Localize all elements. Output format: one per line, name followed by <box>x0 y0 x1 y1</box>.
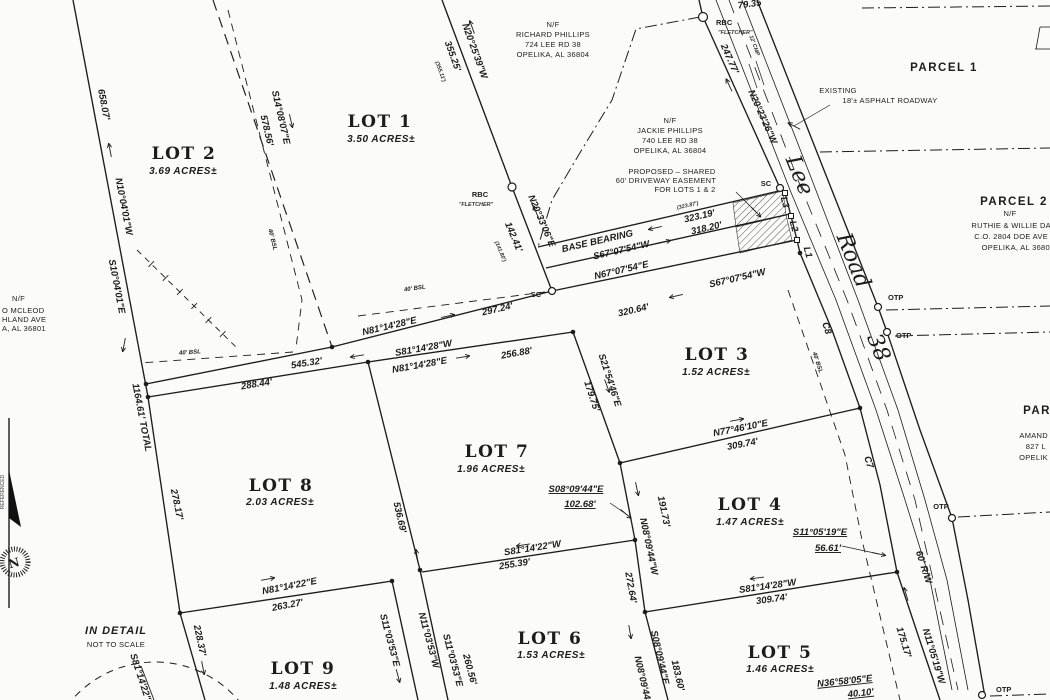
direction-arrow <box>201 661 205 675</box>
adjoiner-label: JACKIE PHILLIPS <box>637 126 703 135</box>
bearing-label: N08°09'44"W <box>632 655 656 700</box>
easement-corner-marker <box>783 191 788 196</box>
monument-marker <box>508 183 516 191</box>
bearing-label: 191.73' <box>655 495 672 529</box>
bearing-label: 79.35 <box>737 0 763 12</box>
adjoiner-label: RUTHIE & WILLIE DA <box>971 221 1050 230</box>
easement-corner-marker <box>789 214 794 219</box>
bearing-label: S81°14'22"W <box>127 652 156 700</box>
adjoiner-parcel-line <box>990 694 1050 696</box>
bearing-label: 536.69' <box>391 501 409 535</box>
lot-acreage: 2.03 ACRES± <box>245 497 314 508</box>
north-arrow-pennant <box>9 470 21 527</box>
adjoiner-parcel-line <box>862 6 1050 8</box>
lot-acreage: 3.50 ACRES± <box>347 134 415 145</box>
arrow-head <box>270 576 275 577</box>
arrow-head <box>638 491 639 496</box>
lot-acreage: 1.48 ACRES± <box>269 681 337 692</box>
lot-name: LOT 6 <box>518 629 583 649</box>
lot-acreage: 3.69 ACRES± <box>149 166 217 177</box>
bearing-label: 578.56' <box>258 114 276 148</box>
labels-layer: LOT 13.50 ACRES±LOT 23.69 ACRES±LOT 31.5… <box>0 0 1050 700</box>
direction-arrow <box>648 226 662 230</box>
corner-marker <box>895 570 900 575</box>
adjoiner-label: O MCLEOD <box>2 306 45 315</box>
adjoiner-parcel-line <box>895 332 1050 336</box>
bearing-label: C8 <box>819 321 833 337</box>
road-name-label: 38 <box>861 330 895 365</box>
corner-marker <box>418 568 423 573</box>
bearing-label: 545.32' <box>290 356 323 372</box>
corner-marker <box>178 611 183 616</box>
corner-marker <box>633 538 638 543</box>
direction-arrow <box>669 294 683 298</box>
record-distance-label: "FLETCHER" <box>459 202 494 208</box>
adjoiner-label: FOR LOTS 1 & 2 <box>654 185 715 194</box>
bearing-label: 320.64' <box>617 302 651 320</box>
bearing-label: 297.24' <box>480 301 515 319</box>
adjoiner-parcel-line <box>958 512 1050 517</box>
bearing-label: 179.75' <box>581 380 601 414</box>
boundary-line <box>1036 27 1040 49</box>
arrow-head <box>204 670 205 675</box>
setback-line <box>228 10 302 348</box>
boundary-line <box>620 408 860 463</box>
bearing-label: 256.88' <box>499 345 533 362</box>
setback-label: 40' BSL <box>810 350 823 374</box>
arrow-head <box>350 357 355 358</box>
bearing-label: N20°33'06"E <box>525 193 557 249</box>
adjoiner-label: N/F <box>664 116 677 125</box>
adjoiner-parcel-line <box>820 148 1050 152</box>
adjoiner-label: 724 LEE RD 38 <box>525 40 581 49</box>
lot-acreage: 1.96 ACRES± <box>457 464 525 475</box>
arrow-head <box>669 298 674 299</box>
direction-arrow <box>107 143 111 157</box>
lot-name: LOT 2 <box>152 144 217 164</box>
arrow-head <box>739 417 744 418</box>
parcel-label: PARCEL 1 <box>910 62 978 74</box>
monument-label: OTP <box>888 293 903 302</box>
bearing-label: 272.64' <box>622 570 639 604</box>
bearing-label: N20°25'39"W <box>459 22 490 81</box>
bearing-label: N11°05'19"W <box>920 627 948 686</box>
bearing-label: 263.27' <box>270 597 305 614</box>
monument-label: RBC <box>716 18 733 27</box>
parcel-label: PARCEL 2 <box>980 196 1048 208</box>
bearing-label: 40.10' <box>846 687 875 700</box>
adjoiner-label: N/F <box>12 294 25 303</box>
boundary-line <box>148 332 573 397</box>
bearing-label: L1 <box>801 246 814 260</box>
bearing-label: 228.37' <box>191 623 209 658</box>
corner-marker <box>858 406 863 411</box>
plat-page: N LOT 13.50 ACRES±LOT 23.69 ACRES±LOT 31… <box>0 0 1050 700</box>
bearing-label: 102.68' <box>564 499 596 510</box>
adjoiner-parcel-line <box>886 306 1050 310</box>
monument-marker <box>549 288 556 295</box>
bearing-label: 255.39' <box>497 557 531 573</box>
adjoiner-label: 827 L <box>1026 442 1046 451</box>
direction-arrow <box>730 417 744 421</box>
monument-label: OTP <box>896 331 911 340</box>
monument-label: OTP <box>933 502 948 511</box>
lot-acreage: 1.53 ACRES± <box>517 650 585 661</box>
bearing-label: S11°03'53"E <box>377 613 402 669</box>
arrow-head <box>107 143 108 148</box>
monument-marker <box>979 692 986 699</box>
arrow-head <box>293 123 294 128</box>
boundary-line <box>645 572 897 612</box>
corner-marker <box>643 610 648 615</box>
bearing-label: C7 <box>861 455 875 471</box>
record-distance-label: (141.80') <box>493 240 507 263</box>
lot-name: LOT 1 <box>348 112 413 132</box>
bearing-label: N08°09'44"W <box>637 517 660 577</box>
bearing-label: 288.44' <box>239 377 273 393</box>
arrow-head <box>750 579 755 580</box>
lot-name: LOT 7 <box>465 442 530 462</box>
road-name-label: Road <box>830 229 875 292</box>
bearing-label: N81°14'28"E <box>361 315 418 338</box>
edge-note-label: REFERENCED <box>0 474 6 509</box>
corner-marker <box>618 461 623 466</box>
bearing-label: N11°03'53"W <box>416 611 442 670</box>
adjoiner-label: NOT TO SCALE <box>87 640 145 649</box>
direction-arrow <box>415 549 419 563</box>
bearing-label: N67°07'54"E <box>593 259 650 282</box>
bearing-label: S11°05'19"E <box>793 527 848 538</box>
adjoiner-label: N/F <box>547 20 560 29</box>
arrow-head <box>631 634 632 639</box>
direction-arrow <box>396 669 400 683</box>
arrow-head <box>450 313 455 314</box>
corner-marker <box>146 395 151 400</box>
lot-name: LOT 9 <box>271 659 336 679</box>
adjoiner-label: AMAND <box>1019 431 1048 440</box>
direction-arrow <box>628 625 632 639</box>
boundary-line <box>800 253 940 700</box>
lot-name: LOT 8 <box>249 476 314 496</box>
fence-line <box>137 250 237 348</box>
arrow-head <box>666 239 671 240</box>
boundary-line <box>699 0 702 13</box>
bearing-label: S08°09'44"E <box>549 484 605 495</box>
monument-marker <box>875 304 882 311</box>
lot-name: LOT 4 <box>718 495 783 515</box>
corner-marker <box>330 345 335 350</box>
bearing-label: 658.07' <box>95 88 112 122</box>
lot-name: LOT 3 <box>685 345 750 365</box>
adjoiner-label: RICHARD PHILLIPS <box>516 30 590 39</box>
corner-marker <box>366 360 371 365</box>
parcel-label: PAR <box>1023 405 1050 417</box>
monument-marker <box>949 515 956 522</box>
adjoiner-label: PROPOSED – SHARED <box>628 167 715 176</box>
corner-marker <box>390 579 395 584</box>
plat-drawing: N LOT 13.50 ACRES±LOT 23.69 ACRES±LOT 31… <box>0 0 1050 700</box>
boundary-line <box>368 362 420 570</box>
direction-arrow <box>350 354 364 358</box>
detail-title: IN DETAIL <box>85 625 147 637</box>
arrow-head <box>465 354 470 355</box>
corner-marker <box>144 382 149 387</box>
boundary-line <box>73 0 148 397</box>
lot-acreage: 1.46 ACRES± <box>746 664 814 675</box>
monuments-layer: N <box>2 13 986 699</box>
bearing-label: 142.41' <box>502 220 525 254</box>
bearing-label: 60' R/W <box>913 549 934 586</box>
lot-acreage: 1.52 ACRES± <box>682 367 750 378</box>
adjoiner-label: N/F <box>1004 209 1017 218</box>
direction-arrow <box>635 482 639 496</box>
setback-label: 40' BSL <box>178 349 201 357</box>
direction-arrow <box>456 354 470 358</box>
bearing-label: S67°07'54"W <box>708 266 768 290</box>
adjoiner-label: A, AL 36801 <box>2 324 46 333</box>
record-distance-label: (355.11') <box>433 61 446 83</box>
adjoiner-label: HLAND AVE <box>2 315 46 324</box>
direction-arrow <box>872 552 886 556</box>
adjoiner-label: C.O. 2804 DOE AVE <box>974 232 1048 241</box>
bearing-label: S21°54'46"E <box>596 352 624 408</box>
adjoiner-label: 18'± ASPHALT ROADWAY <box>842 96 937 105</box>
setback-line <box>213 0 332 347</box>
boundary-line <box>749 64 757 88</box>
monument-marker <box>699 13 708 22</box>
monument-label: SC <box>531 290 542 299</box>
lot-acreage: 1.47 ACRES± <box>716 517 784 528</box>
bearing-label: 175.17' <box>894 626 914 660</box>
monument-label: RBC <box>472 190 489 199</box>
lot-name: LOT 5 <box>748 643 813 663</box>
adjoiner-label: 60' DRIVEWAY EASEMENT <box>616 176 717 185</box>
arrow-head <box>881 555 886 556</box>
adjoiner-label: OPELIKA, AL 36804 <box>634 146 707 155</box>
north-arrow: N <box>2 418 28 608</box>
setback-line <box>140 352 293 363</box>
adjoiner-label: OPELIKA, AL 36804 <box>517 50 590 59</box>
arrow-head <box>400 678 401 683</box>
monument-label: SC <box>761 179 772 188</box>
arrow-head <box>648 230 653 231</box>
record-distance-label: "FLETCHER" <box>718 30 753 36</box>
corner-marker <box>571 330 576 335</box>
setback-label: 40' BSL <box>403 284 427 293</box>
monument-label: OTP <box>996 685 1011 694</box>
bearing-label: 247.77' <box>717 42 740 77</box>
bearing-label: 1164.61' TOTAL <box>129 382 153 452</box>
adjoiner-label: EXISTING <box>819 86 856 95</box>
adjoiner-label: 740 LEE RD 38 <box>642 136 698 145</box>
direction-arrow <box>750 576 764 580</box>
bearing-label: S08°09'44"E <box>648 629 671 686</box>
bearing-label: 355.25' <box>442 40 463 74</box>
setback-line <box>358 292 545 316</box>
bearing-label: 56.61' <box>815 543 842 554</box>
boundary-line <box>442 0 512 187</box>
detail-circle <box>45 662 265 700</box>
direction-arrow <box>261 576 275 580</box>
easement-corner-marker <box>795 238 800 243</box>
arrow-head <box>121 347 122 352</box>
direction-arrow <box>289 114 293 128</box>
bearing-label: 183.60' <box>669 659 687 693</box>
adjoiner-label: OPELIK <box>1019 453 1048 462</box>
setback-label: 40' BSL <box>266 227 277 251</box>
adjoiner-label: OPELIKA, AL 3680 <box>982 243 1050 252</box>
bearing-label: 309.74' <box>726 436 760 453</box>
direction-arrow <box>121 338 125 352</box>
bearing-label: 278.17' <box>168 487 186 522</box>
